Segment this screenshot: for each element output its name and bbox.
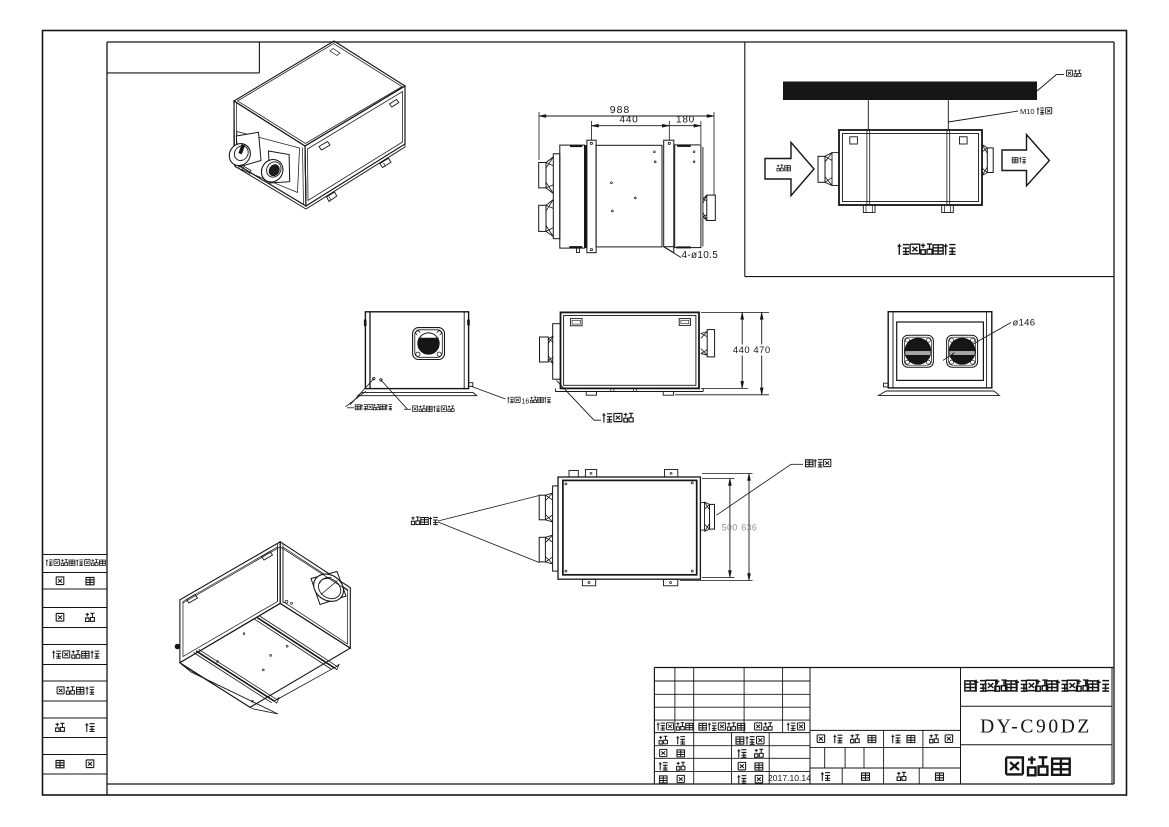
svg-text:M10: M10: [1020, 107, 1035, 116]
svg-text:2017.10.14: 2017.10.14: [768, 773, 811, 783]
svg-text:440: 440: [619, 115, 638, 126]
svg-text:500: 500: [722, 523, 738, 533]
svg-text:636: 636: [741, 523, 757, 533]
svg-text:180: 180: [676, 115, 695, 126]
svg-text:16: 16: [522, 398, 530, 405]
svg-text:440: 440: [733, 345, 750, 356]
svg-text:470: 470: [753, 345, 770, 356]
svg-text:DY-C90DZ: DY-C90DZ: [980, 717, 1092, 738]
svg-text:4-ø10.5: 4-ø10.5: [682, 250, 719, 261]
svg-text:ø146: ø146: [1013, 317, 1036, 328]
